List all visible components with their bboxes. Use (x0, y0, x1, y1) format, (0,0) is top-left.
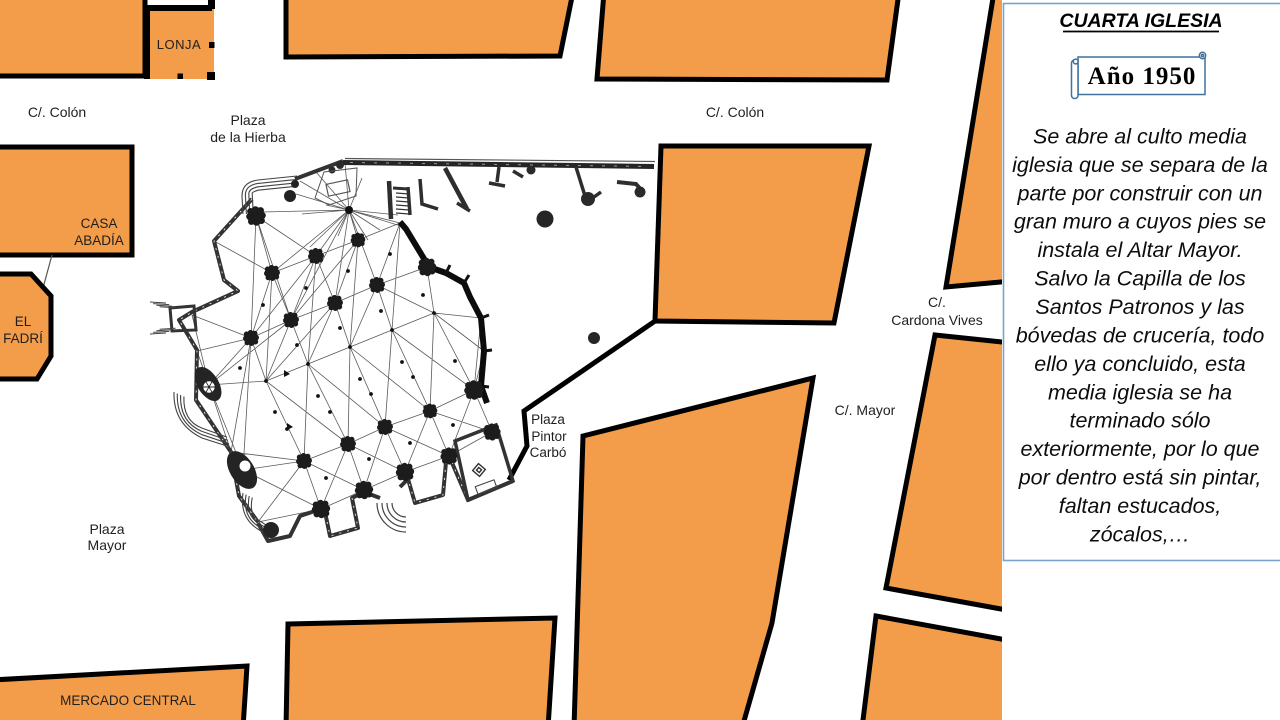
svg-text:exteriormente, por lo que: exteriormente, por lo que (1020, 437, 1259, 461)
svg-text:parte por construir con un: parte por construir con un (1017, 181, 1263, 205)
svg-text:zócalos,…: zócalos,… (1089, 522, 1190, 546)
svg-text:Se abre al culto media: Se abre al culto media (1033, 124, 1247, 148)
svg-text:Santos Patronos y las: Santos Patronos y las (1035, 295, 1244, 319)
svg-text:bóvedas de crucería, todo: bóvedas de crucería, todo (1016, 323, 1265, 347)
svg-text:Carbó: Carbó (530, 445, 567, 460)
svg-text:media iglesia se ha: media iglesia se ha (1048, 380, 1232, 404)
svg-text:C/. Colón: C/. Colón (706, 104, 764, 120)
svg-text:Plaza: Plaza (89, 521, 124, 537)
svg-text:Cardona Vives: Cardona Vives (891, 312, 983, 328)
svg-text:Plaza: Plaza (531, 412, 565, 427)
svg-text:CASA: CASA (81, 216, 118, 231)
svg-text:Plaza: Plaza (230, 112, 265, 128)
svg-text:terminado sólo: terminado sólo (1069, 409, 1210, 433)
svg-text:C/.: C/. (928, 294, 946, 310)
svg-text:por dentro está sin pintar,: por dentro está sin pintar, (1018, 466, 1262, 490)
svg-text:EL: EL (15, 314, 32, 329)
svg-text:LONJA: LONJA (157, 37, 201, 52)
svg-text:MERCADO CENTRAL: MERCADO CENTRAL (60, 693, 196, 708)
svg-text:Mayor: Mayor (88, 537, 127, 553)
svg-text:de la Hierba: de la Hierba (210, 129, 286, 145)
svg-text:instala el Altar Mayor.: instala el Altar Mayor. (1037, 238, 1242, 262)
svg-text:C/. Mayor: C/. Mayor (835, 402, 896, 418)
svg-text:ABADÍA: ABADÍA (74, 233, 124, 248)
svg-text:ello ya concluido, esta: ello ya concluido, esta (1034, 352, 1246, 376)
svg-text:iglesia que se separa de la: iglesia que se separa de la (1012, 153, 1268, 177)
svg-text:FADRÍ: FADRÍ (3, 331, 43, 346)
svg-text:CUARTA IGLESIA: CUARTA IGLESIA (1059, 10, 1222, 32)
svg-text:gran muro a cuyos pies se: gran muro a cuyos pies se (1014, 210, 1266, 234)
svg-text:C/. Colón: C/. Colón (28, 104, 86, 120)
svg-text:Salvo la Capilla de los: Salvo la Capilla de los (1034, 267, 1246, 291)
svg-text:faltan estucados,: faltan estucados, (1059, 494, 1222, 518)
svg-text:Pintor: Pintor (531, 429, 567, 444)
svg-text:Año 1950: Año 1950 (1088, 63, 1197, 90)
